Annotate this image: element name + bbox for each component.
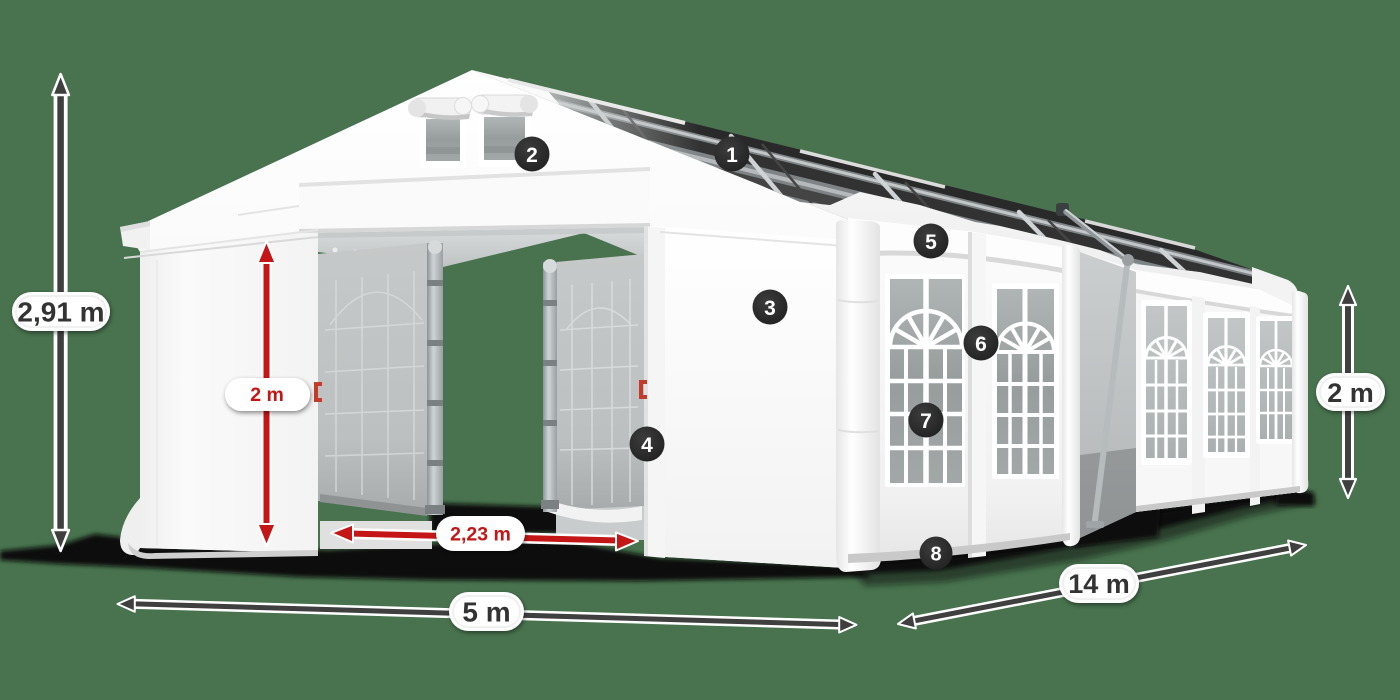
svg-text:2: 2 [526, 144, 538, 167]
svg-text:2,23 m: 2,23 m [450, 524, 511, 546]
svg-text:5: 5 [925, 231, 937, 254]
svg-text:7: 7 [920, 410, 932, 433]
svg-text:3: 3 [764, 297, 776, 320]
svg-text:2,91 m: 2,91 m [17, 297, 104, 328]
svg-text:6: 6 [975, 333, 987, 356]
svg-text:2 m: 2 m [1327, 378, 1374, 408]
svg-text:4: 4 [641, 434, 653, 457]
svg-text:14 m: 14 m [1068, 569, 1130, 599]
svg-text:2 m: 2 m [250, 384, 284, 406]
svg-text:1: 1 [726, 144, 738, 167]
svg-text:5 m: 5 m [462, 597, 510, 628]
svg-text:8: 8 [930, 544, 941, 566]
